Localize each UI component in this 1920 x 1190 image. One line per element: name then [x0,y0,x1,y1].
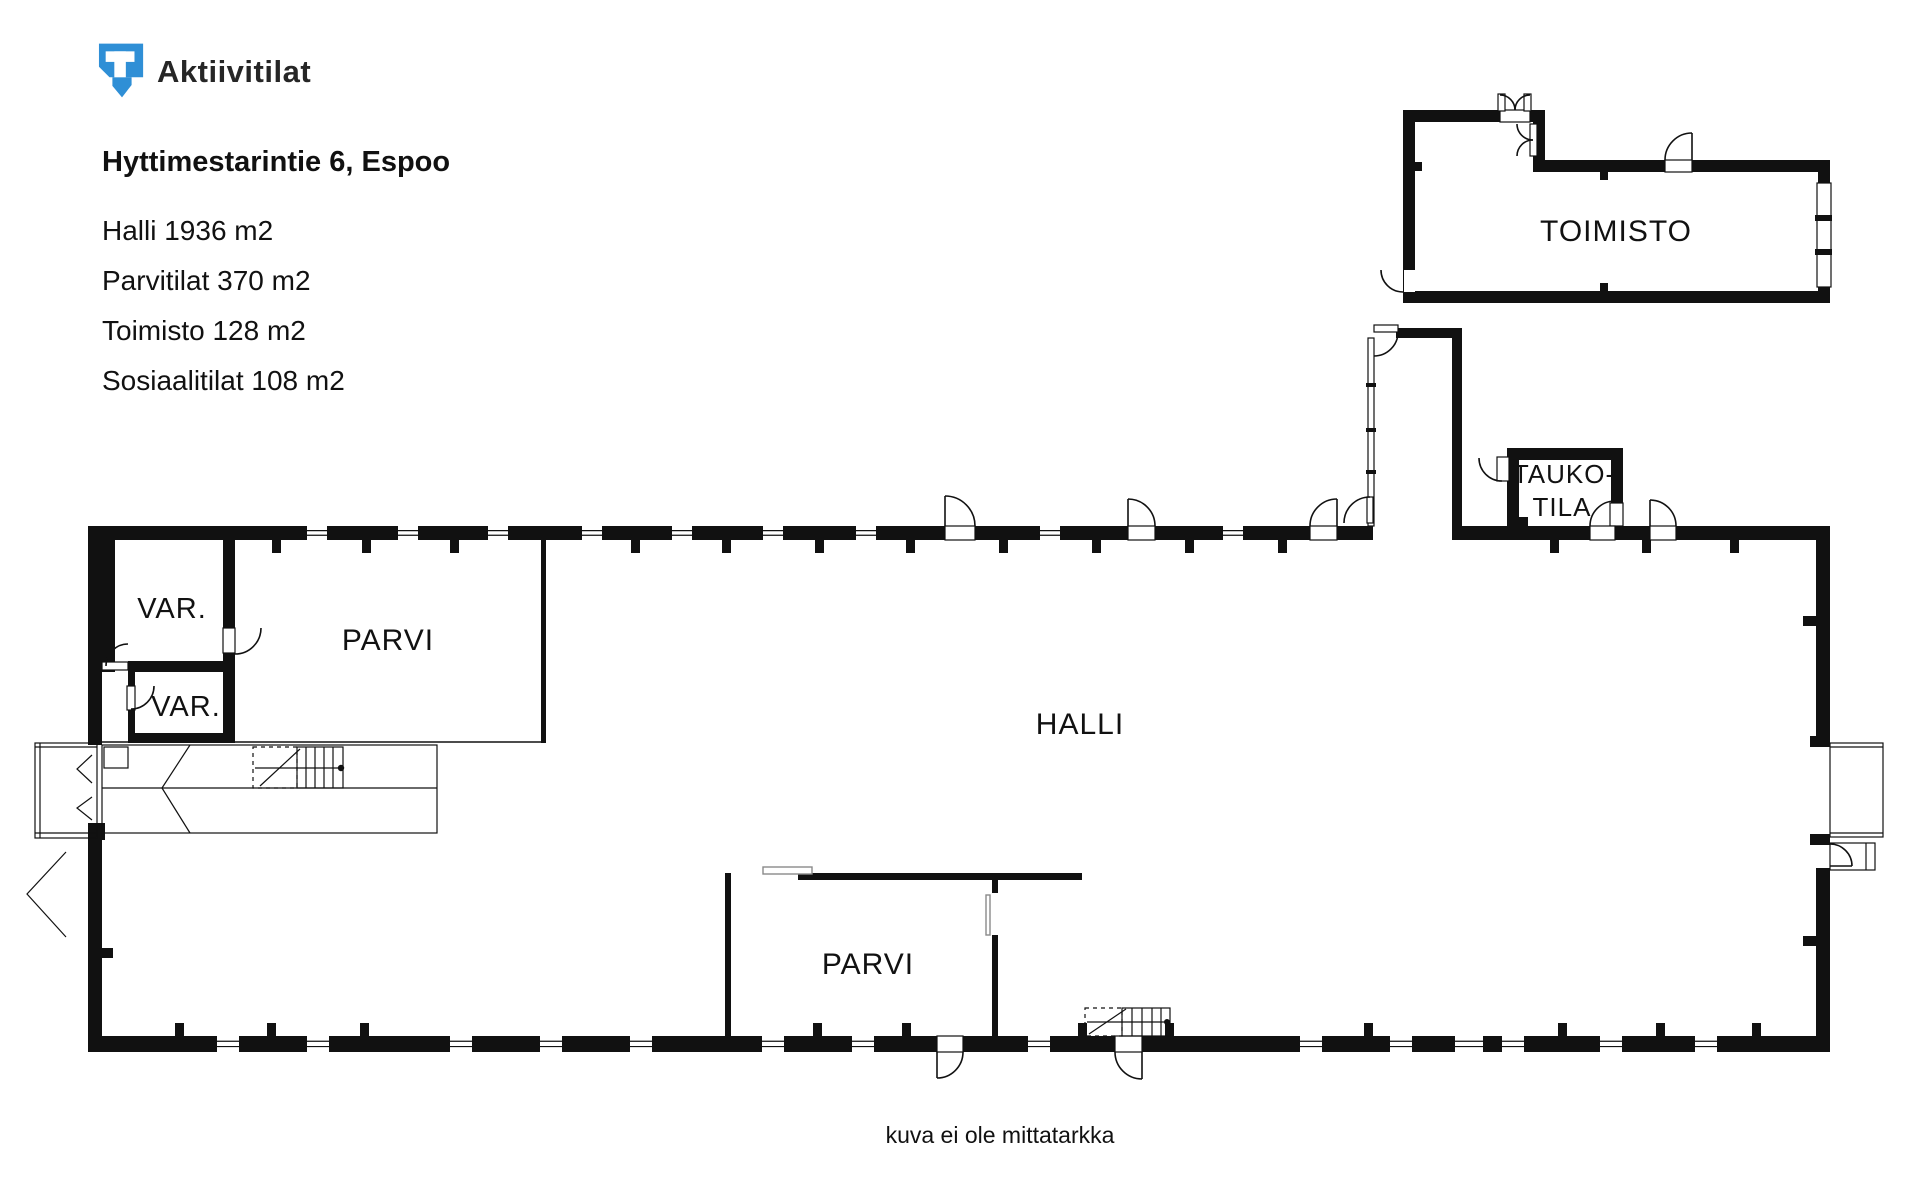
room-label-var-upper: VAR. [137,593,207,625]
room-label-taukotila-line2: TILA [1533,492,1592,522]
room-label-halli: HALLI [1036,708,1124,741]
room-label-var-lower: VAR. [151,691,221,723]
toimisto-room [1381,94,1832,303]
right-loading-dock [1830,743,1883,837]
stairs-lower [1085,1008,1170,1036]
canopy-structure [102,745,437,833]
side-wall-pilasters [102,616,1816,958]
disclaimer-text: kuva ei ole mittatarkka [820,1122,1180,1149]
page: Aktiivitilat Hyttimestarintie 6, Espoo H… [0,0,1920,1190]
corridor [1344,325,1462,526]
top-wall-pilasters [272,540,1739,553]
right-entry-vestibule [1817,843,1875,870]
room-label-toimisto: TOIMISTO [1540,215,1692,248]
floor-plan: TOIMISTO TAUKO- TILA VAR. VAR. PARVI PAR… [0,0,1920,1190]
room-label-parvi-upper: PARVI [342,624,434,657]
stairs-upper [253,747,344,788]
room-label-taukotila-line1: TAUKO- [1513,459,1615,489]
hall-walls [88,526,1830,1052]
left-loading-dock [27,743,128,937]
bottom-wall-pilasters [175,1023,1761,1036]
room-label-parvi-lower: PARVI [822,948,914,981]
